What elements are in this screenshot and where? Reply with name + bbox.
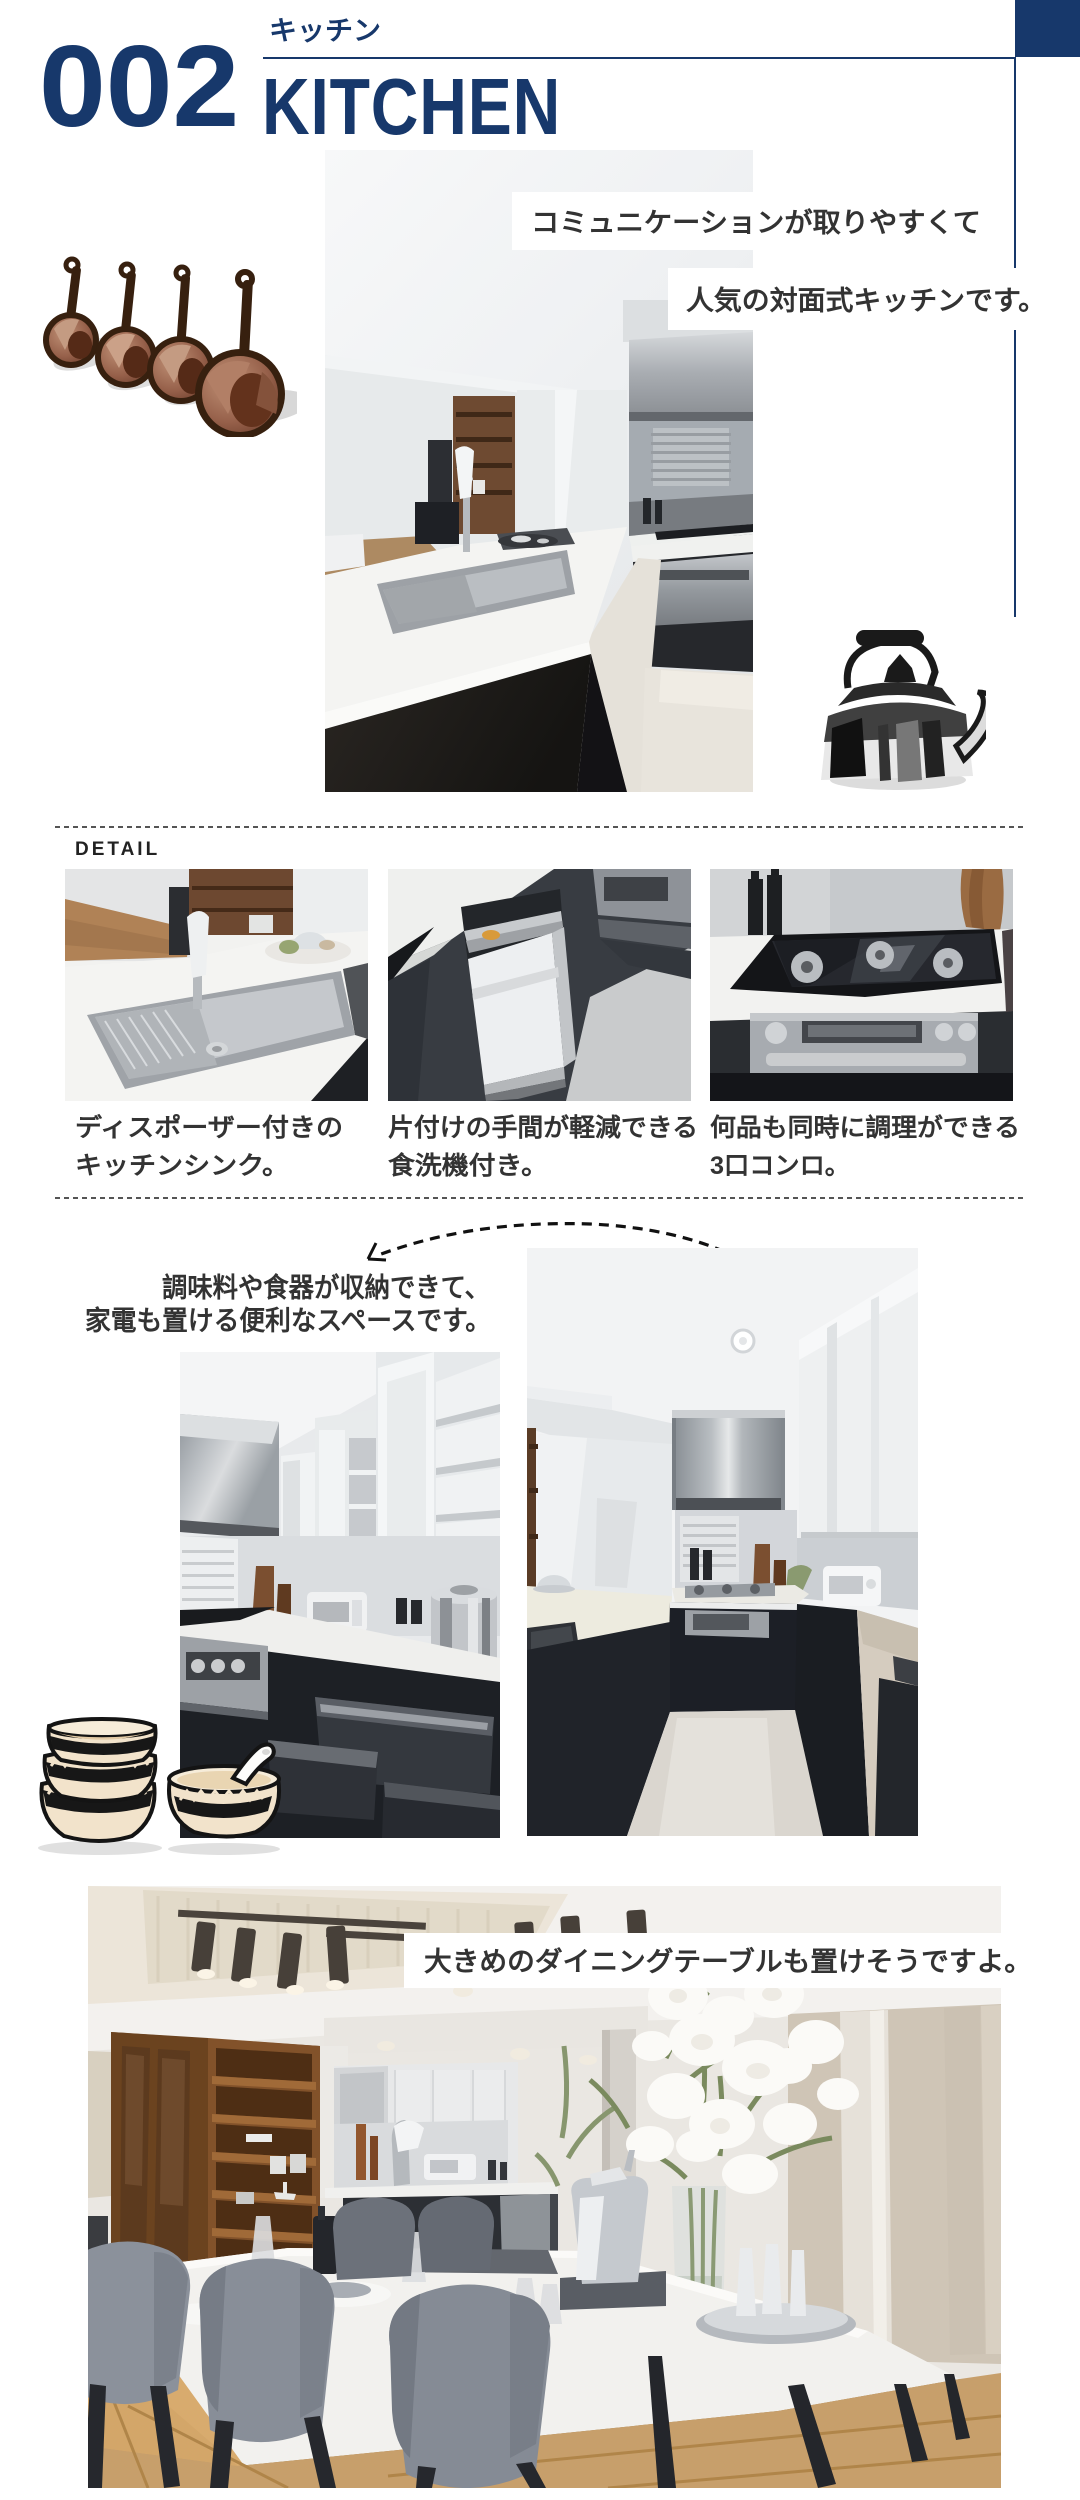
svg-text:片付けの手間が軽減できる: 片付けの手間が軽減できる: [388, 1113, 698, 1142]
svg-text:3口コンロ。: 3口コンロ。: [710, 1152, 850, 1180]
svg-text:キッチンシンク。: キッチンシンク。: [75, 1152, 289, 1180]
svg-text:キッチン: キッチン: [269, 16, 381, 46]
svg-text:大きめのダイニングテーブルも置けそうですよ。: 大きめのダイニングテーブルも置けそうですよ。: [424, 1946, 1032, 1977]
svg-text:何品も同時に調理ができる: 何品も同時に調理ができる: [710, 1113, 1020, 1142]
svg-text:食洗機付き。: 食洗機付き。: [388, 1151, 548, 1180]
svg-text:調味料や食器が収納できて、: 調味料や食器が収納できて、: [162, 1272, 490, 1302]
svg-text:家電も置ける便利なスペースです。: 家電も置ける便利なスペースです。: [85, 1305, 491, 1335]
svg-text:コミュニケーションが取りやすくて: コミュニケーションが取りやすくて: [531, 207, 981, 238]
svg-text:ディスポーザー付きの: ディスポーザー付きの: [75, 1113, 343, 1142]
svg-text:人気の対面式キッチンです。: 人気の対面式キッチンです。: [686, 285, 1046, 316]
